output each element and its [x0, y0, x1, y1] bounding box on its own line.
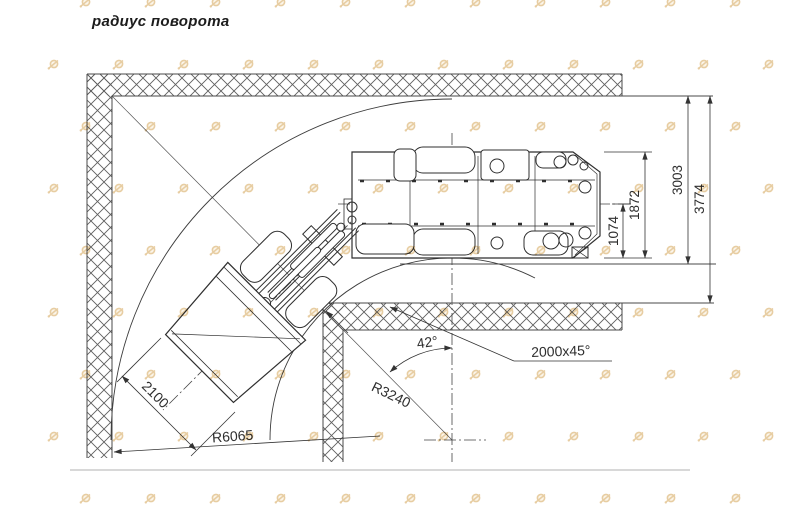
watermark-logo-icon [600, 494, 610, 503]
watermark-logo-icon [113, 60, 123, 69]
watermark-logo-icon [340, 122, 350, 131]
dim-1872-label: 1872 [627, 190, 642, 220]
watermark-logo-icon [275, 370, 285, 379]
watermark-logo-icon [633, 60, 643, 69]
watermark-logo-icon [48, 184, 58, 193]
watermark-logo-icon [633, 432, 643, 441]
watermark-logo-icon [210, 246, 220, 255]
watermark-logo-icon [405, 370, 415, 379]
watermark-logo-icon [665, 0, 675, 8]
watermark-logo-icon [275, 0, 285, 8]
watermark-logo-icon [730, 370, 740, 379]
watermark-logo-icon [145, 246, 155, 255]
watermark-logo-icon [763, 432, 773, 441]
angle-42-label: 42° [416, 333, 439, 352]
watermark-logo-icon [600, 0, 610, 8]
watermark-logo-icon [470, 494, 480, 503]
watermark-logo-icon [535, 0, 545, 8]
watermark-logo-icon [210, 122, 220, 131]
machine-rear-body [344, 147, 600, 258]
watermark-logo-icon [698, 60, 708, 69]
watermark-logo-icon [600, 246, 610, 255]
watermark-logo-icon [340, 0, 350, 8]
watermark-logo-icon [600, 122, 610, 131]
watermark-logo-icon [568, 60, 578, 69]
watermark-logo-icon [698, 432, 708, 441]
page-title: радиус поворота [92, 13, 229, 30]
watermark-logo-icon [405, 122, 415, 131]
watermark-logo-icon [80, 0, 90, 8]
watermark-logo-icon [470, 370, 480, 379]
watermark-logo-icon [665, 122, 675, 131]
watermark-logo-icon [210, 0, 220, 8]
watermark-logo-icon [730, 246, 740, 255]
watermark-logo-icon [535, 122, 545, 131]
watermark-logo-icon [275, 494, 285, 503]
watermark-logo-icon [600, 370, 610, 379]
dim-2100-label: 2100 [139, 378, 172, 411]
watermark-logo-icon [113, 432, 123, 441]
watermark-logo-icon [730, 122, 740, 131]
angle-42-arc [390, 348, 452, 372]
watermark-logo-icon [113, 308, 123, 317]
watermark-logo-icon [145, 0, 155, 8]
watermark-logo-icon [113, 184, 123, 193]
watermark-logo-icon [763, 184, 773, 193]
chamfer-label: 2000x45° [531, 342, 591, 360]
watermark-logo-icon [470, 122, 480, 131]
watermark-logo-icon [665, 246, 675, 255]
dim-3003-label: 3003 [670, 165, 685, 195]
watermark-logo-icon [730, 494, 740, 503]
watermark-logo-icon [340, 494, 350, 503]
watermark-logo-icon [665, 370, 675, 379]
watermark-logo-icon [373, 60, 383, 69]
watermark-logo-icon [503, 432, 513, 441]
watermark-logo-icon [503, 60, 513, 69]
dim-r3240-label: R3240 [369, 378, 413, 411]
watermark-logo-icon [405, 0, 415, 8]
watermark-logo-icon [145, 122, 155, 131]
watermark-logo-icon [665, 494, 675, 503]
watermark-logo-icon [210, 494, 220, 503]
watermark-logo-icon [633, 308, 643, 317]
watermark-logo-icon [145, 494, 155, 503]
dim-1074-label: 1074 [606, 215, 621, 246]
watermark-logo-icon [243, 60, 253, 69]
watermark-logo-icon [308, 60, 318, 69]
watermark-logo-icon [145, 370, 155, 379]
watermark-logo-icon [405, 494, 415, 503]
drawing-page: радиус поворота [0, 0, 790, 529]
watermark-logo-icon [698, 308, 708, 317]
watermark-logo-icon [730, 0, 740, 8]
watermark-logo-icon [80, 494, 90, 503]
watermark-logo-icon [243, 184, 253, 193]
watermark-logo-icon [178, 60, 188, 69]
watermark-logo-icon [178, 184, 188, 193]
watermark-logo-icon [275, 122, 285, 131]
watermark-logo-icon [308, 184, 318, 193]
watermark-logo-icon [48, 308, 58, 317]
watermark-logo-icon [470, 0, 480, 8]
corner-bisector-line [112, 96, 452, 440]
watermark-logo-icon [373, 432, 383, 441]
watermark-logo-icon [535, 370, 545, 379]
watermark-logo-icon [763, 60, 773, 69]
watermark-logo-icon [568, 432, 578, 441]
watermark-logo-icon [763, 308, 773, 317]
watermark-logo-icon [535, 494, 545, 503]
turning-radius-diagram: 1074 1872 3003 3774 2100 R6065 R3240 42°… [0, 0, 790, 529]
watermark-logo-icon [48, 60, 58, 69]
watermark-logo-icon [438, 60, 448, 69]
watermark-logo-icon [48, 432, 58, 441]
